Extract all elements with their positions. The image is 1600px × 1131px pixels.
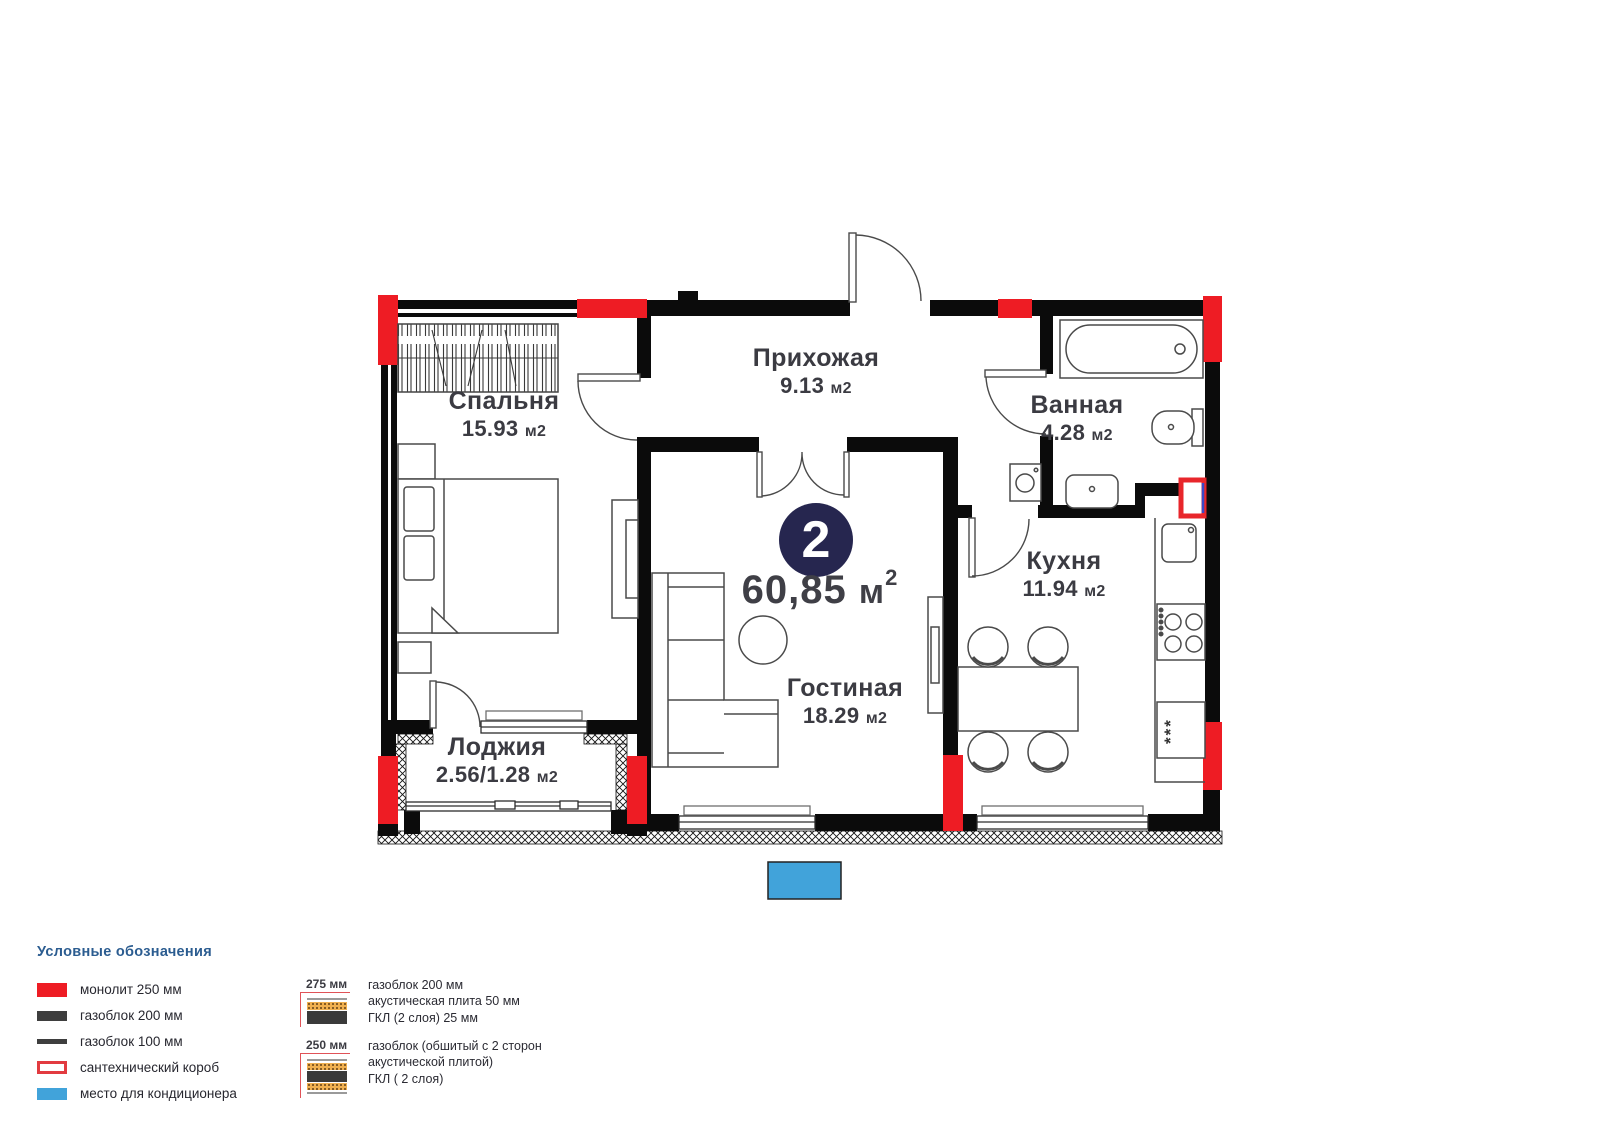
nightstand (398, 642, 431, 673)
ac-spot (768, 862, 841, 899)
monolith-swatch (37, 983, 67, 997)
kitchen-counter: *** (1155, 518, 1205, 782)
wall-sections: 275 мм газоблок 200 мм акустическая плит… (300, 975, 542, 1107)
tv-unit (928, 597, 943, 713)
room-label-hallway: Прихожая 9.13 м2 (753, 343, 880, 399)
legend-item-gasblock-200: газоблок 200 мм (37, 1008, 237, 1023)
bed (398, 479, 558, 633)
toilet-icon (1152, 409, 1203, 446)
entrance-door (849, 233, 921, 302)
fridge-icon: *** (1157, 702, 1205, 758)
dresser (612, 500, 638, 618)
stove-icon (1157, 604, 1205, 660)
floorplan-page: *** (0, 0, 1600, 1131)
ac-swatch (37, 1088, 67, 1100)
wardrobe (398, 324, 558, 392)
nightstand (398, 444, 435, 479)
room-label-loggia: Лоджия 2.56/1.28 м2 (436, 732, 558, 788)
room-label-living: Гостиная 18.29 м2 (787, 673, 903, 729)
legend-item-plumbing-duct: сантехнический короб (37, 1060, 237, 1075)
washing-machine-icon (1010, 464, 1041, 501)
wall-layers-250-icon (300, 1054, 347, 1098)
total-area: 60,85 м2 (742, 565, 899, 613)
plumbing-duct-swatch (37, 1061, 67, 1074)
legend-item-gasblock-100: газоблок 100 мм (37, 1034, 237, 1049)
bathroom-sink (1066, 475, 1118, 508)
bathtub (1060, 320, 1203, 378)
coffee-table (739, 616, 787, 664)
legend-item-monolith: монолит 250 мм (37, 982, 237, 997)
room-label-kitchen: Кухня 11.94 м2 (1022, 546, 1105, 602)
kitchen-door (969, 518, 1029, 577)
plumbing-duct (1181, 480, 1204, 516)
loggia-door (430, 681, 480, 728)
dining-table (958, 667, 1078, 731)
room-label-bathroom: Ванная 4.28 м2 (1030, 390, 1123, 446)
wall-layers-275-icon (300, 993, 347, 1027)
wall-section-275: 275 мм газоблок 200 мм акустическая плит… (300, 975, 542, 1027)
gasblock-100-swatch (37, 1039, 67, 1044)
wall-section-250: 250 мм газоблок (обшитый с 2 сторон акус… (300, 1036, 542, 1098)
svg-text:***: *** (1161, 718, 1180, 744)
room-label-bedroom: Спальня 15.93 м2 (449, 386, 560, 442)
living-double-door (757, 452, 849, 497)
gasblock-200-swatch (37, 1011, 67, 1021)
legend-title: Условные обозначения (37, 944, 237, 960)
legend-item-ac: место для кондиционера (37, 1086, 237, 1101)
bedroom-door (578, 374, 640, 440)
legend: Условные обозначения монолит 250 мм газо… (37, 944, 237, 1112)
